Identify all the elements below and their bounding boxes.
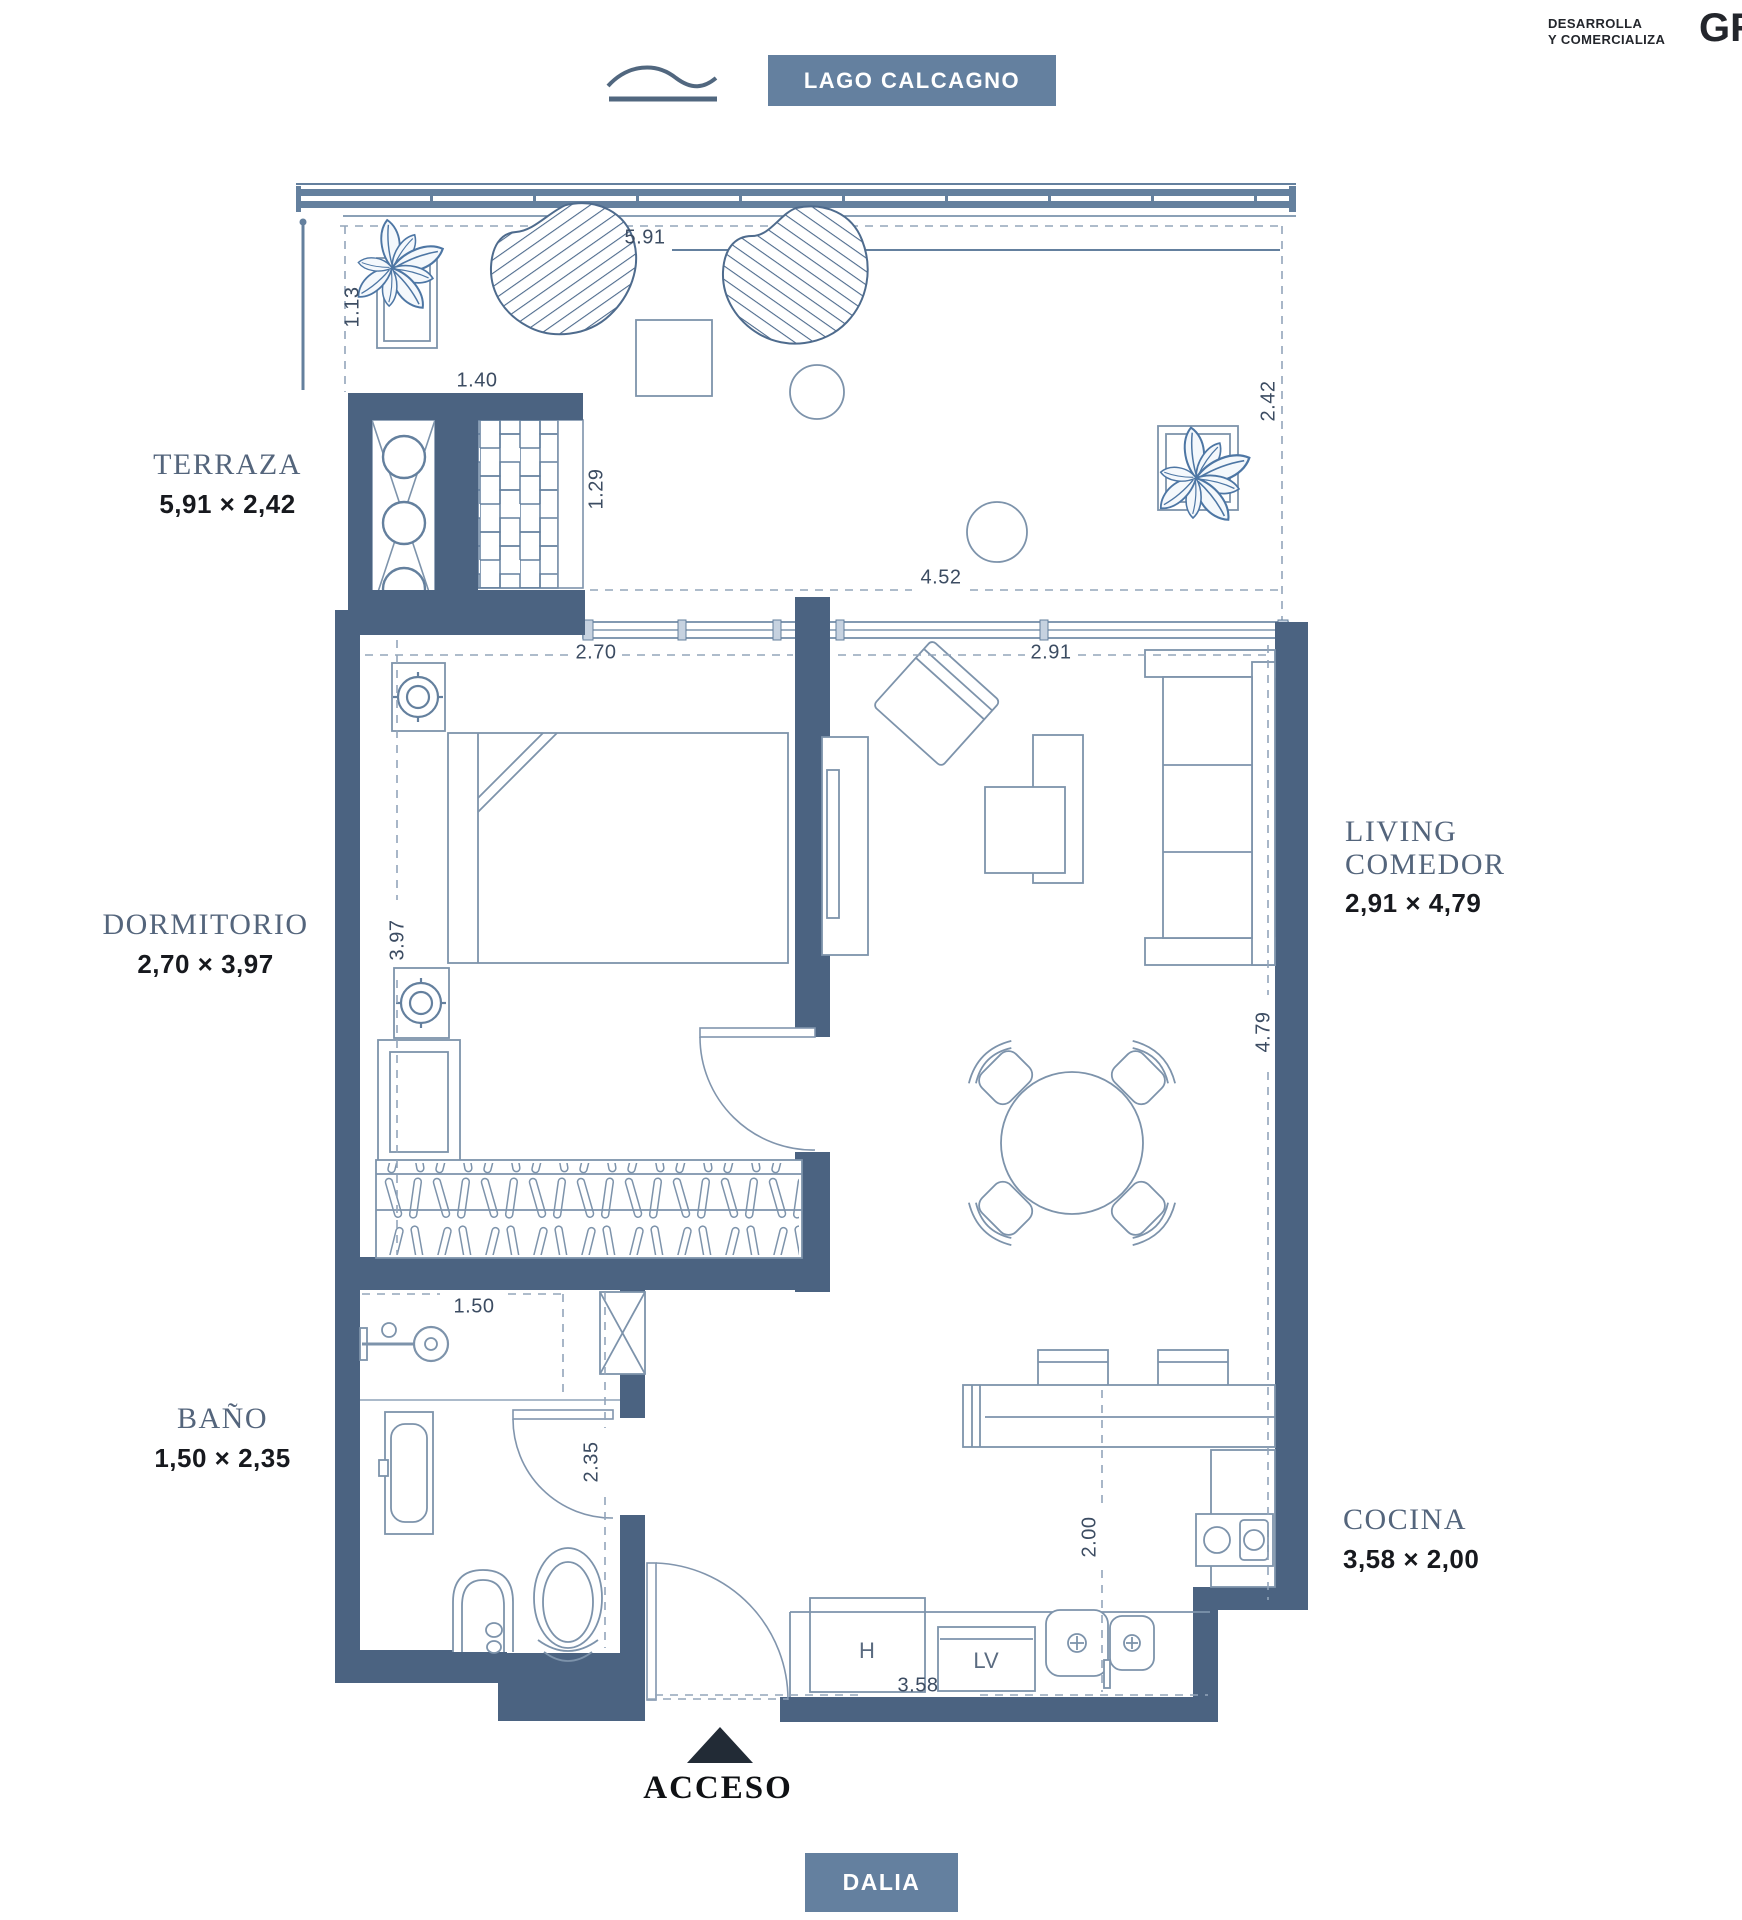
dim-grill-depth: 1.29 — [585, 469, 607, 510]
bidet — [453, 1570, 513, 1653]
room-size-terraza: 5,91 × 2,42 — [100, 489, 355, 520]
room-name-living-line1: LIVING — [1345, 815, 1625, 848]
dim-grill-width: 1.40 — [457, 369, 498, 391]
dim-terrace-side: 1.13 — [341, 287, 363, 328]
room-size-dormitorio: 2,70 × 3,97 — [78, 949, 333, 980]
oven-label: H — [859, 1638, 875, 1663]
room-label-bano: BAÑO 1,50 × 2,35 — [95, 1402, 350, 1474]
dining-table — [1001, 1072, 1143, 1214]
wardrobe — [376, 1160, 802, 1258]
dim-terrace-width: 5.91 — [625, 226, 666, 248]
terrace-square-table — [636, 320, 712, 396]
access-label: ACCESO — [610, 1770, 826, 1807]
room-name-dormitorio: DORMITORIO — [78, 908, 333, 942]
room-label-living: LIVING COMEDOR 2,91 × 4,79 — [1345, 815, 1625, 919]
terrace-side-table — [967, 502, 1027, 562]
dim-terrace-depth: 2.42 — [1257, 381, 1279, 422]
dim-bath-depth: 2.35 — [580, 1442, 602, 1483]
terrace-glazing — [583, 620, 1288, 640]
room-size-cocina: 3,58 × 2,00 — [1343, 1544, 1623, 1575]
living-furniture — [822, 640, 1275, 1251]
grill-brick-area — [478, 420, 558, 588]
room-name-living-line2: COMEDOR — [1345, 848, 1625, 881]
room-size-bano: 1,50 × 2,35 — [95, 1443, 350, 1474]
bed — [448, 733, 788, 963]
tv-unit — [822, 737, 868, 955]
breakfast-bar — [963, 1385, 1275, 1447]
room-label-cocina: COCINA 3,58 × 2,00 — [1343, 1503, 1623, 1575]
room-name-cocina: COCINA — [1343, 1503, 1623, 1537]
kitchen-sink — [1046, 1610, 1154, 1688]
dim-kitchen-width: 3.58 — [898, 1674, 939, 1696]
bedroom-furniture — [376, 663, 802, 1258]
terrace-round-table — [790, 365, 844, 419]
armchair — [873, 640, 1000, 767]
dim-bath-width: 1.50 — [454, 1295, 495, 1317]
dim-kitchen-depth: 2.00 — [1078, 1517, 1100, 1558]
room-name-terraza: TERRAZA — [100, 448, 355, 482]
dim-living-width: 2.91 — [1031, 641, 1072, 663]
room-label-dormitorio: DORMITORIO 2,70 × 3,97 — [78, 908, 333, 980]
dishwasher-label: LV — [973, 1648, 999, 1673]
bedroom-desk — [378, 1040, 460, 1164]
bedroom-door — [700, 1028, 815, 1150]
street-badge-label: DALIA — [843, 1869, 921, 1896]
vanity-sink — [379, 1412, 433, 1534]
dim-slider-width: 4.52 — [921, 566, 962, 588]
sofa — [1145, 650, 1275, 965]
toilet — [534, 1548, 602, 1661]
floor-plan-page: LAGO CALCAGNO DESARROLLA Y COMERCIALIZA … — [0, 0, 1742, 1920]
room-label-terraza: TERRAZA 5,91 × 2,42 — [100, 448, 355, 520]
dim-living-depth: 4.79 — [1252, 1012, 1274, 1053]
street-badge: DALIA — [805, 1853, 958, 1912]
dim-bedroom-width: 2.70 — [576, 641, 617, 663]
bath-duct — [600, 1292, 645, 1374]
lounge-bush-1 — [491, 203, 636, 334]
cooktop — [1196, 1514, 1273, 1566]
dim-bedroom-depth: 3.97 — [386, 920, 408, 961]
lounge-bush-2 — [723, 206, 868, 343]
room-size-living: 2,91 × 4,79 — [1345, 888, 1625, 919]
access-arrow-icon — [687, 1727, 753, 1763]
coffee-table — [985, 787, 1065, 873]
shower — [360, 1323, 620, 1400]
entry-door — [647, 1563, 788, 1700]
duct-shaft — [372, 420, 435, 610]
room-name-bano: BAÑO — [95, 1402, 350, 1436]
